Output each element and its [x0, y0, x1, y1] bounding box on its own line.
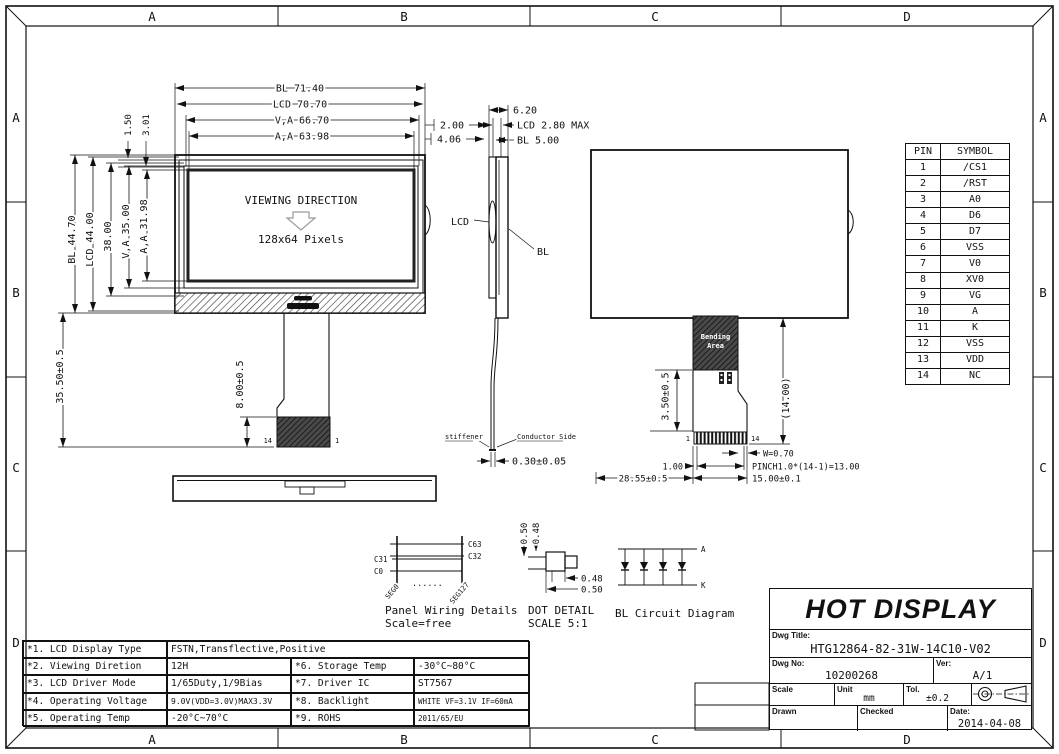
- back-pin1-label: 1: [686, 435, 690, 443]
- dwg-no-label: Dwg No:: [772, 659, 804, 668]
- dim-va-height: V,A 35.00: [121, 204, 132, 258]
- table-row: 2/RST: [906, 176, 1010, 192]
- spec-label: *9. ROHS: [291, 710, 414, 727]
- side-lcd-label: LCD: [451, 217, 469, 228]
- dim-va-width: V,A 66.70: [275, 116, 329, 127]
- side-bl-label: BL: [537, 247, 549, 258]
- dot-detail-scale: SCALE 5:1: [528, 617, 588, 630]
- pin-cell: 2: [906, 176, 941, 192]
- pin-cell: 5: [906, 224, 941, 240]
- pin-cell: 1: [906, 160, 941, 176]
- spec-table: *1. LCD Display Type FSTN,Transflective,…: [22, 640, 529, 726]
- dim-fpc-length: 35.50±0.5: [55, 349, 66, 403]
- dim-lcd-280-max: LCD 2.80 MAX: [517, 121, 589, 132]
- frame-col-d-top: D: [903, 9, 911, 24]
- spec-value: -20°C~70°C: [167, 710, 291, 727]
- symbol-cell: A: [941, 304, 1010, 320]
- dim-bl-500: BL 5.00: [517, 136, 559, 147]
- bl-circuit-lines: [618, 549, 697, 585]
- front-pin1-label: 1: [335, 437, 339, 445]
- pin-cell: 13: [906, 352, 941, 368]
- wiring-seg0-label: SEG0: [384, 583, 401, 601]
- date-value: 2014-04-08: [948, 718, 1031, 730]
- symbol-cell: VDD: [941, 352, 1010, 368]
- frame-col-a-top: A: [148, 9, 156, 24]
- frame-row-b-right: B: [1039, 285, 1047, 300]
- title-block: HOT DISPLAY Dwg Title: HTG12864-82-31W-1…: [769, 588, 1032, 730]
- spec-value: FSTN,Transflective,Positive: [167, 641, 530, 658]
- frame-row-a-left: A: [12, 110, 20, 125]
- table-row: 14NC: [906, 368, 1010, 384]
- spec-label: *7. Driver IC: [291, 675, 414, 692]
- table-row: 13VDD: [906, 352, 1010, 368]
- stiffener-label: stiffener: [445, 433, 483, 441]
- bending-area-label-2: Area: [707, 342, 724, 350]
- pin-table-header-pin: PIN: [906, 144, 941, 160]
- panel-wiring-scale: Scale=free: [385, 617, 451, 630]
- bending-area-label-1: Bending: [701, 333, 731, 341]
- conductor-side-label: Conductor Side: [517, 433, 576, 441]
- frame-row-a-right: A: [1039, 110, 1047, 125]
- dim-pin-pitch: PINCH1.0*(14-1)=13.00: [752, 463, 859, 473]
- dim-fpc-thickness: 0.30±0.05: [512, 457, 566, 468]
- side-view: 6.20 LCD 2.80 MAX BL 5.00 2.00 4.06 LCD …: [425, 105, 589, 468]
- frame-row-c-left: C: [12, 460, 20, 475]
- table-row: 8XV0: [906, 272, 1010, 288]
- frame-row-b-left: B: [12, 285, 20, 300]
- back-view: Bending Area 1 14 3.50±0.5 (14.00): [591, 150, 859, 485]
- spec-label: *4. Operating Voltage: [23, 693, 167, 710]
- pin-cell: 14: [906, 368, 941, 384]
- side-dim-lines: [425, 105, 534, 467]
- pin-cell: 6: [906, 240, 941, 256]
- spec-label: *5. Operating Temp: [23, 710, 167, 727]
- symbol-cell: A0: [941, 192, 1010, 208]
- frame-col-d-bottom: D: [903, 732, 911, 747]
- ver-value: A/1: [934, 669, 1031, 682]
- wiring-c31-label: C31: [374, 555, 388, 564]
- spec-value: 1/65Duty,1/9Bias: [167, 675, 291, 692]
- spec-label: *6. Storage Temp: [291, 658, 414, 675]
- front-connector: [277, 417, 330, 447]
- symbol-cell: NC: [941, 368, 1010, 384]
- dim-bl-width: BL 71.40: [276, 84, 324, 95]
- projection-symbol-icon: [972, 684, 1031, 704]
- spec-label: *3. LCD Driver Mode: [23, 675, 167, 692]
- frame-row-c-right: C: [1039, 460, 1047, 475]
- bl-circuit-title: BL Circuit Diagram: [615, 607, 735, 620]
- frame-col-a-bottom: A: [148, 732, 156, 747]
- pin-cell: 10: [906, 304, 941, 320]
- spec-value: ST7567: [414, 675, 530, 692]
- company-logo: HOT DISPLAY: [770, 589, 1031, 630]
- dim-offset-200: 2.00: [440, 121, 464, 132]
- spec-label: *2. Viewing Diretion: [23, 658, 167, 675]
- dim-gap-150: 1.50: [124, 114, 134, 136]
- dim-1400: (14.00): [781, 377, 792, 419]
- dot-dim-v050: 0.50: [520, 523, 530, 545]
- table-row: 11K: [906, 320, 1010, 336]
- table-row: 9VG: [906, 288, 1010, 304]
- bl-anode-label: A: [701, 545, 706, 554]
- dot-detail-title: DOT DETAIL: [528, 604, 595, 617]
- dot-detail-diagram: 0.50 0.48 0.48 0.50 DOT DETAIL SCALE 5:1: [520, 523, 603, 630]
- back-connector-pins: [694, 432, 747, 444]
- dim-lcd-width: LCD 70.70: [273, 100, 327, 111]
- dim-2855: 28.55±0.5: [619, 475, 668, 485]
- symbol-cell: D6: [941, 208, 1010, 224]
- ver-label: Ver:: [936, 659, 951, 668]
- spec-label: *8. Backlight: [291, 693, 414, 710]
- dim-gap-301: 3.01: [142, 114, 152, 136]
- frame-row-d-right: D: [1039, 635, 1047, 650]
- table-row: 5D7: [906, 224, 1010, 240]
- table-row: 12VSS: [906, 336, 1010, 352]
- spec-label: *1. LCD Display Type: [23, 641, 167, 658]
- dot-dim-v048: 0.48: [532, 523, 542, 545]
- dim-38-height: 38.00: [103, 221, 114, 251]
- frame-row-d-left: D: [12, 635, 20, 650]
- dim-tail-length: 8.00±0.5: [235, 360, 246, 408]
- symbol-cell: /RST: [941, 176, 1010, 192]
- wiring-seg127-label: SEG127: [448, 581, 470, 606]
- dim-lcd-height: LCD 44.00: [85, 212, 96, 266]
- dim-pin-width: W=0.70: [763, 450, 794, 460]
- dot-detail-shapes: [524, 544, 578, 593]
- symbol-cell: VSS: [941, 240, 1010, 256]
- symbol-cell: D7: [941, 224, 1010, 240]
- spec-value: 12H: [167, 658, 291, 675]
- bl-circuit-diagram: A K BL Circuit Diagram: [615, 545, 735, 620]
- frame-col-c-bottom: C: [651, 732, 659, 747]
- table-row: 1/CS1: [906, 160, 1010, 176]
- wiring-c0-label: C0: [374, 567, 384, 576]
- dim-side-620: 6.20: [513, 106, 537, 117]
- dim-offset-406: 4.06: [437, 135, 461, 146]
- table-row: 10A: [906, 304, 1010, 320]
- revision-boxes: [695, 683, 769, 730]
- bl-circuit-leds: [621, 562, 686, 570]
- checked-label: Checked: [860, 707, 893, 716]
- viewing-direction-label: VIEWING DIRECTION: [245, 194, 358, 207]
- spec-value: 2011/65/EU: [414, 710, 530, 727]
- pin-table: PINSYMBOL 1/CS1 2/RST 3A0 4D6 5D7 6VSS 7…: [905, 143, 1010, 385]
- dim-350: 3.50±0.5: [661, 372, 672, 420]
- pin-cell: 11: [906, 320, 941, 336]
- symbol-cell: /CS1: [941, 160, 1010, 176]
- wiring-c32-label: C32: [468, 552, 482, 561]
- dot-dim-h050: 0.50: [581, 586, 603, 596]
- symbol-cell: VG: [941, 288, 1010, 304]
- pin-cell: 3: [906, 192, 941, 208]
- spec-value: 9.0V(VDD=3.0V)MAX3.3V: [167, 693, 291, 710]
- drawing-sheet: A B C D A B C D A B C D A B C D: [0, 0, 1059, 754]
- panel-wiring-title: Panel Wiring Details: [385, 604, 517, 617]
- frame-col-c-top: C: [651, 9, 659, 24]
- symbol-cell: VSS: [941, 336, 1010, 352]
- panel-wiring-diagram: C63 C32 C31 C0 SEG0 SEG127 ...... Panel …: [374, 536, 517, 630]
- pin-cell: 7: [906, 256, 941, 272]
- drawn-label: Drawn: [772, 707, 796, 716]
- symbol-cell: K: [941, 320, 1010, 336]
- pin-cell: 12: [906, 336, 941, 352]
- bottom-edge-view: [173, 476, 436, 501]
- scale-label: Scale: [772, 685, 793, 694]
- date-label: Date:: [950, 707, 970, 716]
- spec-value: WHITE VF=3.1V IF=60mA: [414, 693, 530, 710]
- front-pin14-label: 14: [264, 437, 272, 445]
- pin-cell: 9: [906, 288, 941, 304]
- dwg-title-value: HTG12864-82-31W-14C10-V02: [770, 642, 1031, 656]
- dot-dim-h048: 0.48: [581, 575, 603, 585]
- symbol-cell: V0: [941, 256, 1010, 272]
- table-row: 4D6: [906, 208, 1010, 224]
- table-row: 6VSS: [906, 240, 1010, 256]
- table-row: 7V0: [906, 256, 1010, 272]
- dim-aa-width: A,A 63.98: [275, 132, 329, 143]
- dim-100: 1.00: [663, 463, 683, 473]
- wiring-dots: ......: [412, 579, 443, 589]
- front-view: 14 1 VIEWING DIRECTION 128x64 Pixels BL …: [55, 83, 436, 501]
- table-row: 3A0: [906, 192, 1010, 208]
- spec-value: -30°C~80°C: [414, 658, 530, 675]
- dim-bl-height: BL 44.70: [67, 215, 78, 263]
- pin-cell: 4: [906, 208, 941, 224]
- unit-value: mm: [835, 693, 903, 704]
- back-pin14-label: 14: [751, 435, 759, 443]
- tol-value: ±0.2: [904, 693, 971, 704]
- viewing-direction-arrow-icon: [287, 212, 315, 230]
- dwg-title-label: Dwg Title:: [772, 631, 810, 640]
- symbol-cell: XV0: [941, 272, 1010, 288]
- frame-col-b-top: B: [400, 9, 408, 24]
- pin-cell: 8: [906, 272, 941, 288]
- dwg-no-value: 10200268: [770, 669, 933, 682]
- bl-cathode-label: K: [701, 581, 706, 590]
- pin-table-header-symbol: SYMBOL: [941, 144, 1010, 160]
- pixel-count-label: 128x64 Pixels: [258, 233, 344, 246]
- wiring-c63-label: C63: [468, 540, 482, 549]
- dim-aa-height: A,A 31.98: [139, 199, 150, 253]
- dim-1500: 15.00±0.1: [752, 475, 801, 485]
- frame-col-b-bottom: B: [400, 732, 408, 747]
